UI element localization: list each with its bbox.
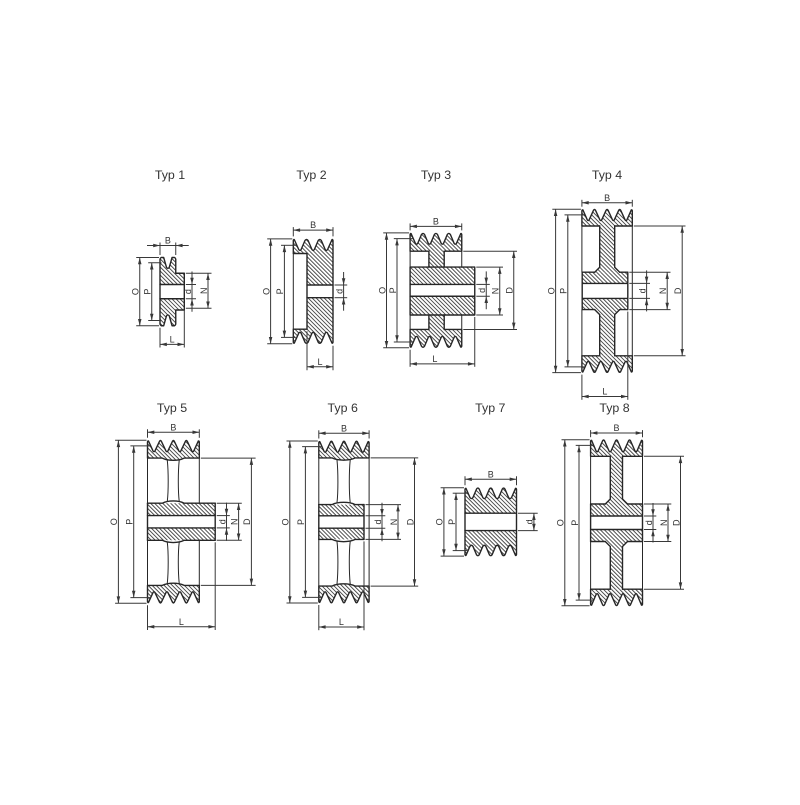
svg-text:Typ 3: Typ 3 [421,168,451,182]
svg-text:Typ 8: Typ 8 [599,401,629,415]
svg-text:N: N [199,288,209,295]
svg-text:P: P [447,519,457,525]
svg-text:B: B [604,193,610,203]
svg-text:d: d [373,519,383,524]
svg-text:B: B [165,236,171,246]
svg-text:L: L [602,387,607,397]
svg-text:D: D [505,287,515,294]
svg-text:N: N [229,519,239,526]
svg-text:D: D [671,519,681,526]
svg-text:D: D [242,518,252,525]
svg-text:O: O [556,519,566,526]
svg-text:O: O [435,518,445,525]
svg-text:P: P [296,519,306,525]
svg-text:D: D [673,287,683,294]
svg-text:B: B [170,422,176,432]
svg-text:B: B [310,220,316,230]
svg-text:Typ 2: Typ 2 [296,168,326,182]
svg-text:D: D [405,518,415,525]
svg-text:P: P [125,519,135,525]
svg-text:B: B [488,469,494,479]
svg-text:d: d [334,289,344,294]
svg-text:Typ 5: Typ 5 [157,401,187,415]
svg-text:P: P [570,520,580,526]
svg-text:d: d [477,288,487,293]
svg-text:N: N [658,288,668,295]
svg-text:d: d [637,288,647,293]
svg-text:O: O [261,288,271,295]
svg-text:P: P [275,288,285,294]
svg-text:N: N [659,520,669,527]
svg-text:O: O [546,287,556,294]
svg-text:L: L [317,357,322,367]
svg-text:d: d [217,519,227,524]
svg-text:P: P [388,287,398,293]
svg-text:Typ 7: Typ 7 [475,401,505,415]
svg-text:B: B [614,423,620,433]
svg-text:O: O [281,518,291,525]
svg-text:L: L [170,334,175,344]
svg-text:d: d [644,520,654,525]
svg-text:O: O [109,518,119,525]
svg-text:d: d [183,289,193,294]
svg-text:P: P [559,288,569,294]
svg-text:O: O [377,287,387,294]
svg-text:L: L [339,617,344,627]
svg-text:L: L [432,354,437,364]
svg-text:B: B [341,423,347,433]
svg-text:B: B [433,216,439,226]
svg-text:Typ 4: Typ 4 [592,168,622,182]
svg-text:N: N [389,519,399,526]
svg-text:Typ 6: Typ 6 [328,401,358,415]
svg-text:O: O [131,288,141,295]
svg-text:N: N [491,288,501,295]
svg-text:P: P [143,289,153,295]
svg-text:Typ 1: Typ 1 [155,168,185,182]
svg-text:d: d [525,519,535,524]
svg-text:L: L [179,617,184,627]
